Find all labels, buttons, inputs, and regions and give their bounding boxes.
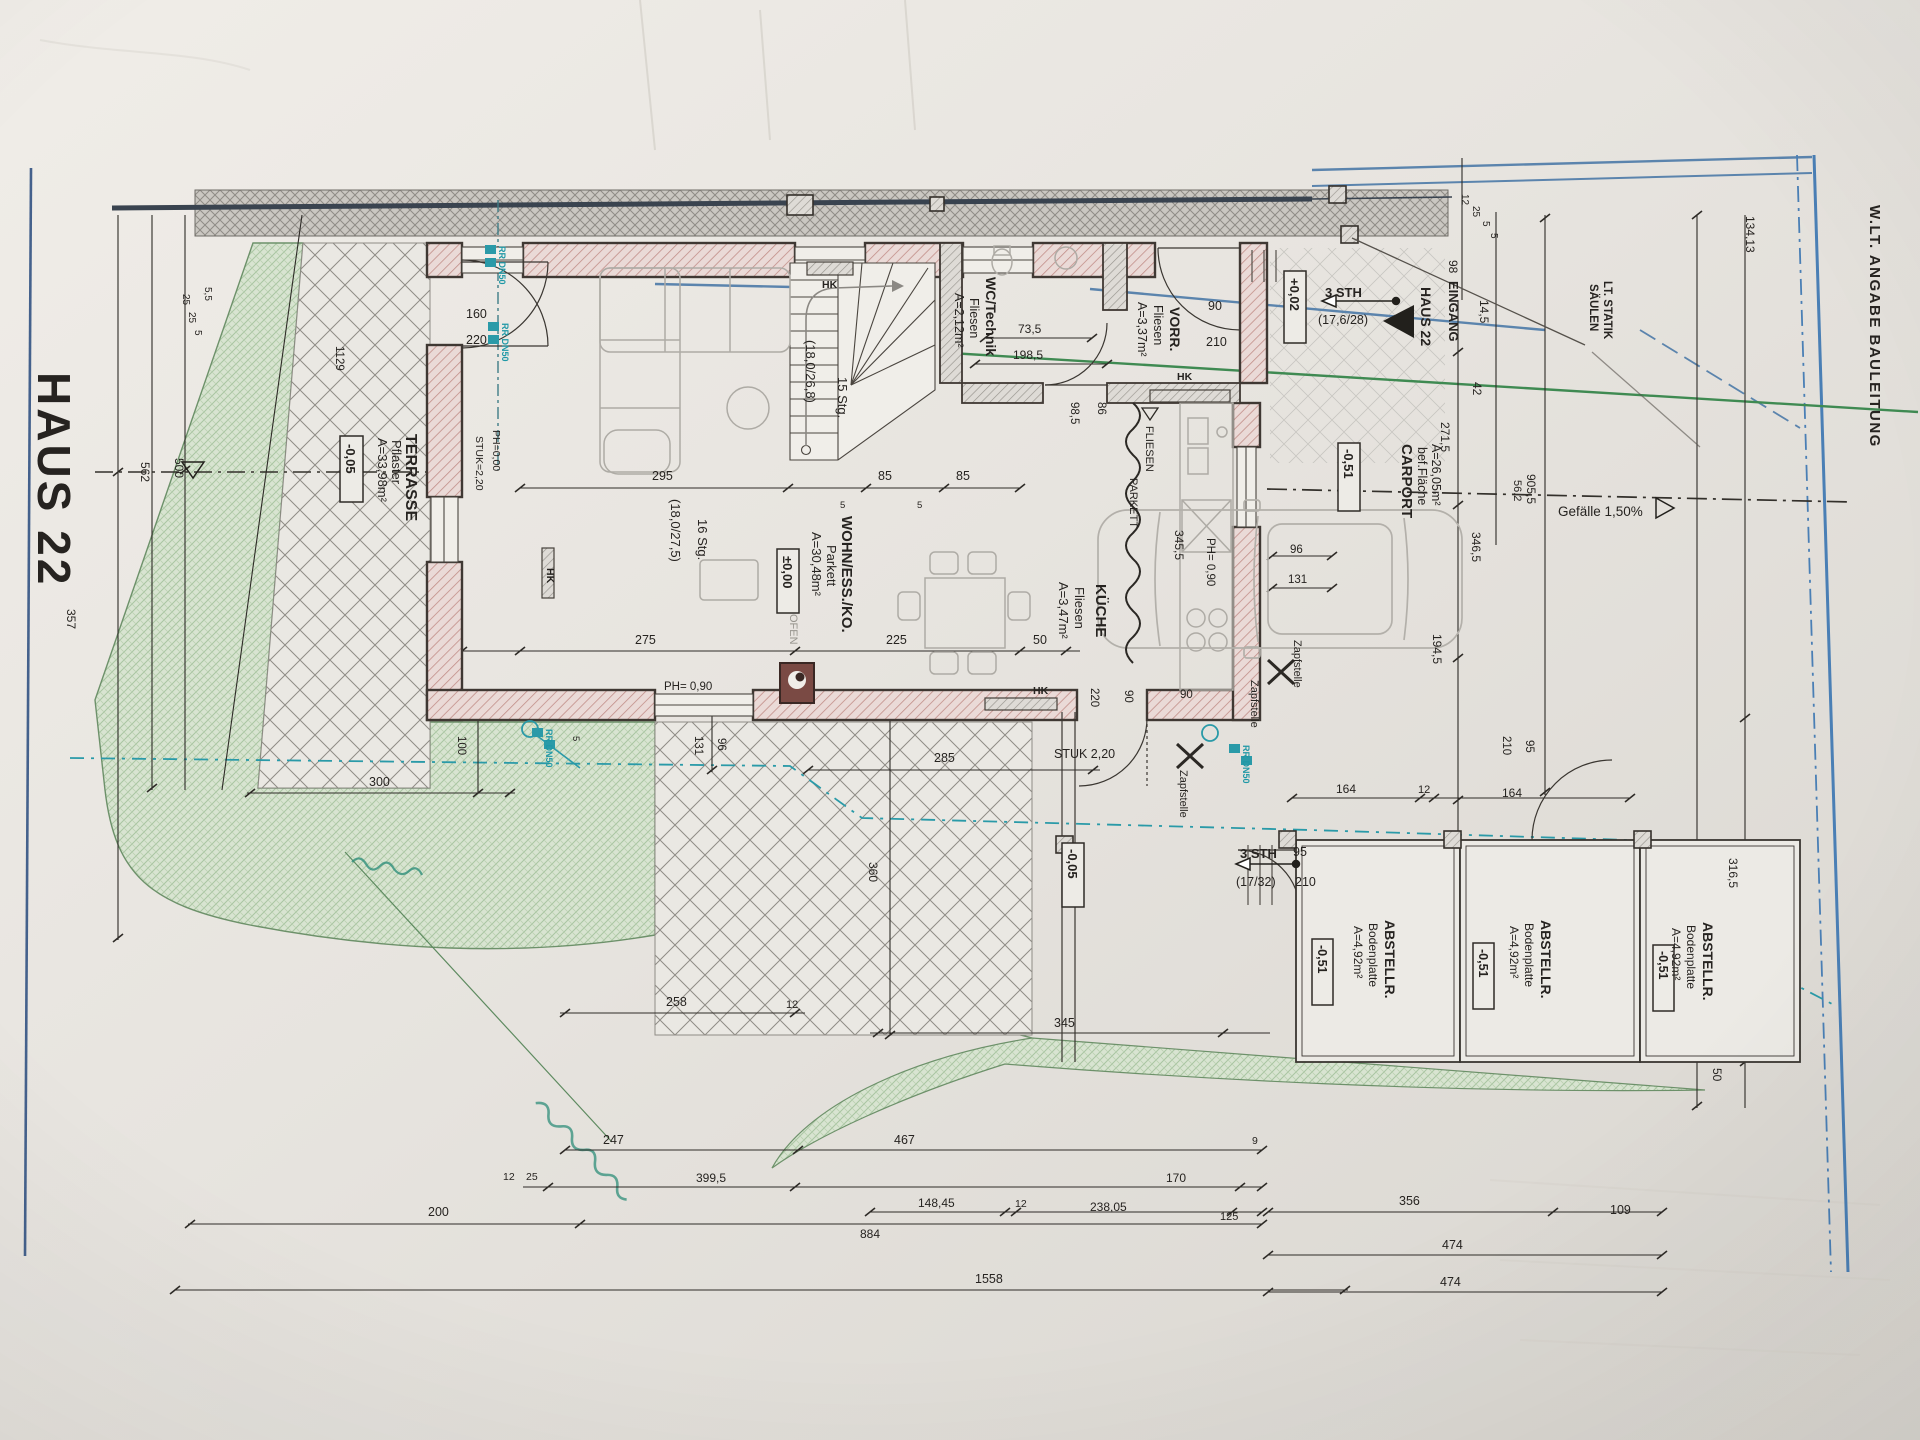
photo-vignette [0,0,1920,1440]
floor-plan-drawing: HAUS 22 W.LT. ANGABE BAULEITUNG TERRASSE… [0,0,1920,1440]
site-plan-photo: HAUS 22 W.LT. ANGABE BAULEITUNG TERRASSE… [0,0,1920,1440]
